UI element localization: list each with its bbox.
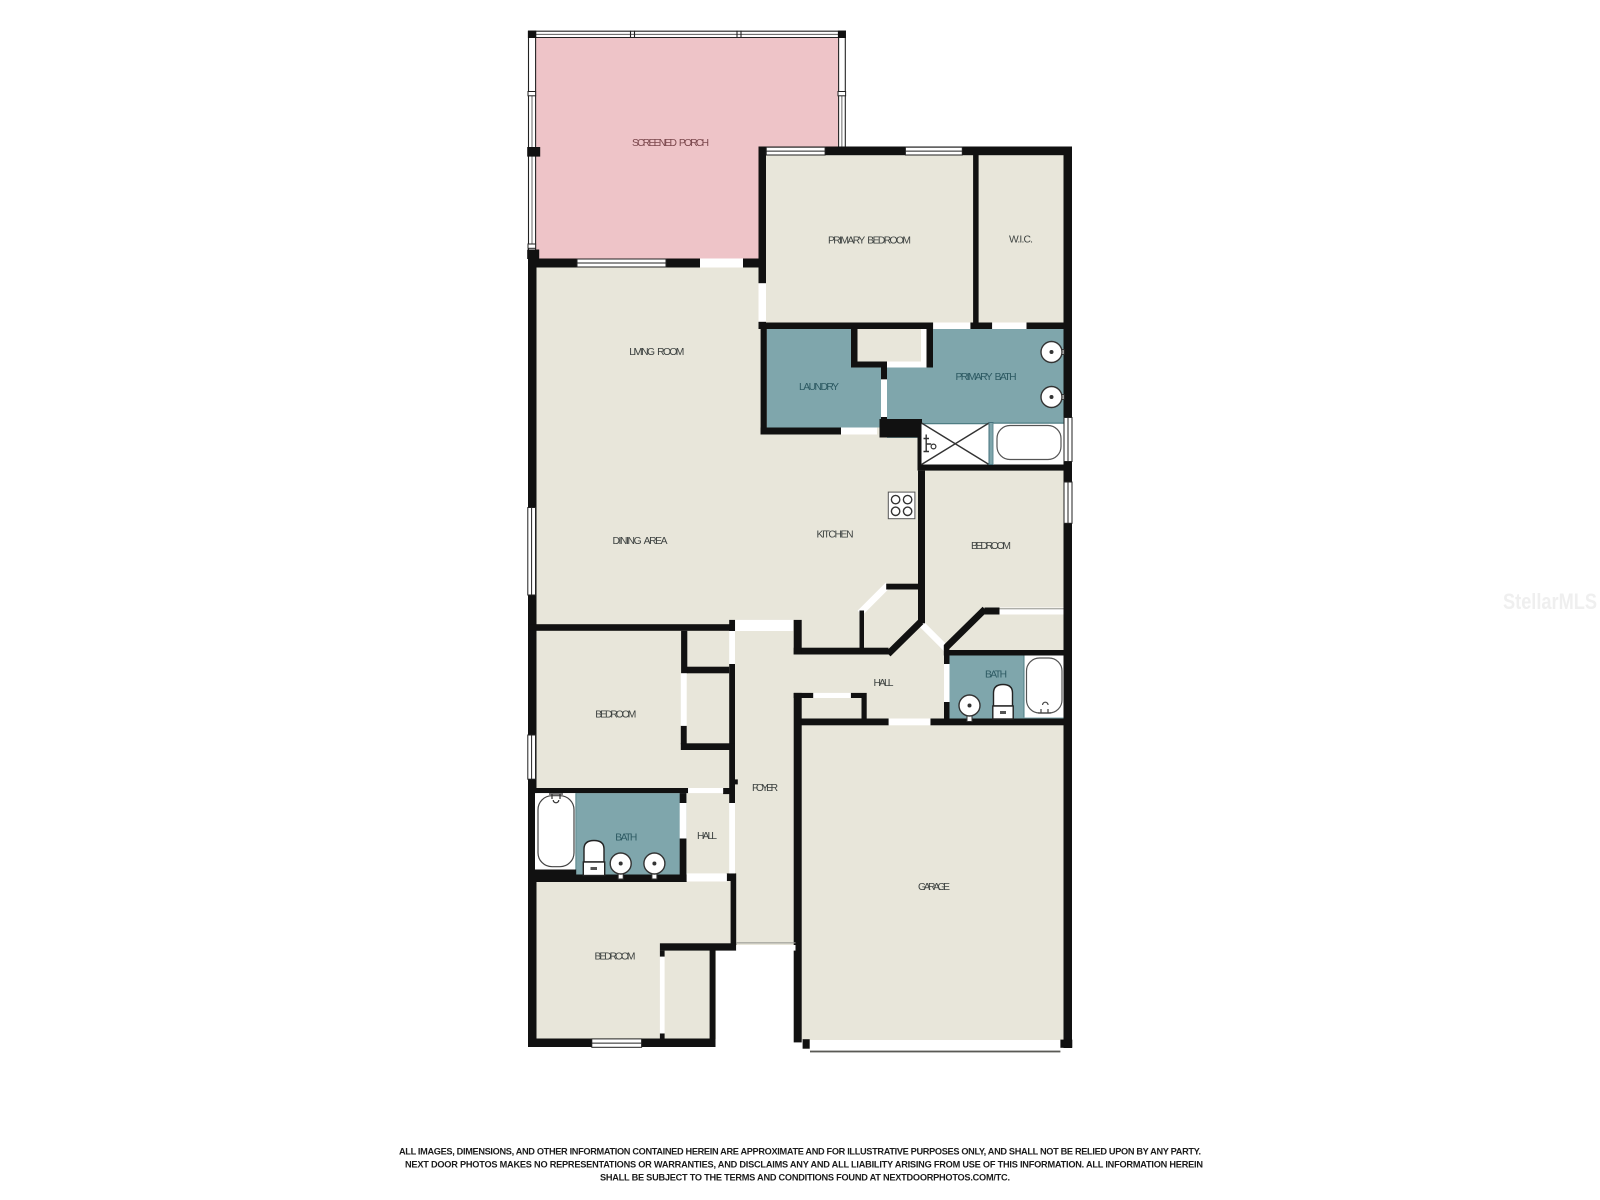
- svg-text:KITCHEN: KITCHEN: [817, 530, 854, 541]
- svg-text:W.I.C.: W.I.C.: [1009, 235, 1033, 246]
- svg-text:SHALL BE SUBJECT TO THE TERMS: SHALL BE SUBJECT TO THE TERMS AND CONDIT…: [600, 1173, 1010, 1183]
- svg-text:SCREENED PORCH: SCREENED PORCH: [632, 138, 709, 149]
- svg-text:LIVING ROOM: LIVING ROOM: [629, 347, 684, 358]
- svg-text:GARAGE: GARAGE: [918, 882, 950, 893]
- svg-text:PRIMARY BATH: PRIMARY BATH: [956, 372, 1017, 383]
- svg-text:LAUNDRY: LAUNDRY: [799, 382, 839, 393]
- svg-text:BEDROOM: BEDROOM: [595, 710, 636, 721]
- svg-text:StellarMLS: StellarMLS: [1503, 589, 1597, 614]
- svg-text:BATH: BATH: [615, 833, 637, 844]
- svg-text:FOYER: FOYER: [752, 783, 778, 794]
- svg-text:HALL: HALL: [874, 678, 894, 689]
- svg-text:PRIMARY BEDROOM: PRIMARY BEDROOM: [828, 236, 911, 247]
- svg-text:BEDROOM: BEDROOM: [971, 541, 1011, 552]
- svg-text:BEDROOM: BEDROOM: [595, 952, 636, 963]
- svg-text:DINING AREA: DINING AREA: [613, 536, 668, 547]
- svg-text:BATH: BATH: [985, 670, 1007, 681]
- svg-text:ALL IMAGES, DIMENSIONS, AND OT: ALL IMAGES, DIMENSIONS, AND OTHER INFORM…: [399, 1147, 1201, 1157]
- svg-text:NEXT DOOR PHOTOS MAKES NO REPR: NEXT DOOR PHOTOS MAKES NO REPRESENTATION…: [405, 1160, 1203, 1170]
- svg-text:HALL: HALL: [697, 831, 717, 842]
